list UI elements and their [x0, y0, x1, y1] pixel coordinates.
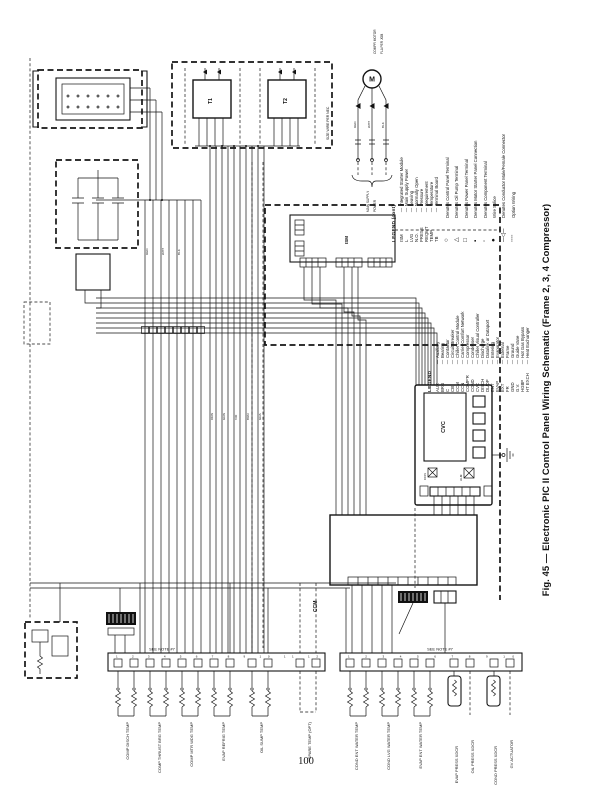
legend-symbol-text: Denotes Power Panel Terminal — [464, 54, 469, 218]
wire-color-label: BLK — [177, 248, 181, 255]
legend-symbol-item: ◦ Denotes Component Terminal — [480, 54, 489, 242]
legend-main: LEGEND AUX — Auxiliary BRG — Bearing C — — [428, 248, 534, 392]
wire-color-label: VIO — [234, 414, 238, 420]
cvc-led-left-label: CCN — [423, 473, 427, 480]
aux-module-box — [24, 254, 110, 344]
sensor-label: COMP DISCH TEMP — [125, 722, 130, 760]
transformer-2-label: T2 — [283, 98, 289, 104]
wire-color-label: RED — [145, 248, 149, 255]
legend-symbol-glyph: ╌╌ — [510, 218, 516, 242]
bottom-left-modules — [25, 612, 136, 678]
legend-symbol-text: Option Wiring — [511, 54, 516, 218]
strip1-header: SEE NOTE #7 — [149, 647, 176, 652]
wire-color-label: GRN — [222, 413, 226, 420]
legend-item: HT EXCH — Heat Exchanger — [525, 248, 530, 392]
sensor-label: EVAP REFRIG TEMP — [221, 722, 226, 761]
wire-color-label: BLK — [381, 121, 385, 128]
wire-color-label: WHT — [161, 248, 165, 255]
manual-page: T1 T2 SIZE WIRE PER NEC M COMPR MOTOR FL… — [0, 0, 612, 792]
cvc-led-right-label: ALM — [459, 474, 463, 481]
sensor-array: COMP DISCH TEMP COMP THRUST BRG TEMP COM… — [116, 671, 515, 785]
legend-symbol-item: ● Wire Splice — [490, 54, 499, 242]
ccm-module: CCM — [313, 515, 477, 653]
legend-symbol-glyph: ─◁─ — [501, 218, 507, 242]
wire-color-label: RED — [353, 121, 357, 128]
wire-color-label: GRA — [258, 412, 262, 420]
cvc-module: CVC CCN ALM — [415, 385, 513, 515]
legend-meaning: Terminal Board — [434, 54, 439, 206]
legend-dash: — — [434, 206, 439, 214]
legend-symbol-text: Denotes Control Panel Terminal — [445, 54, 450, 218]
supply-note-1: MAIN SUPPLY — [366, 190, 370, 212]
legend-symbol-item: △ Denotes Oil Pump Terminal — [452, 54, 461, 242]
legend-list: AUX — Auxiliary BRG — Bearing C — Contac… — [435, 248, 531, 392]
legend-dash: — — [525, 358, 530, 366]
legend-symbol-text: Denotes Conductor Male/Female Connector — [501, 54, 506, 218]
legend-cont: LEGEND (cont) ISM — Integrated Starter M… — [392, 54, 524, 242]
legend-meaning: Heat Exchanger — [525, 248, 530, 358]
legend-symbol-glyph: △ — [454, 218, 460, 242]
capacitor-box — [56, 160, 138, 248]
sensor-label: SPARE TEMP (OPT) — [307, 721, 312, 759]
transformer-box: T1 T2 SIZE WIRE PER NEC — [172, 62, 332, 148]
motor-label: M — [369, 77, 375, 84]
ccm-label: CCM — [313, 601, 319, 612]
legend-symbol-glyph: □ — [463, 218, 469, 242]
legend-symbol-item: □ Denotes Power Panel Terminal — [462, 54, 471, 242]
figure-caption-block: Fig. 45 — Electronic PIC II Control Pane… — [532, 150, 558, 650]
terminal-strip-2: SEE NOTE #7 1 2 3 4 5 6 7 8 9 10 — [340, 647, 522, 672]
figure-caption: Fig. 45 — Electronic PIC II Control Pane… — [540, 204, 551, 596]
strip2-numbers: 1 2 3 4 5 6 7 8 9 10 — [348, 655, 514, 659]
legend-symbol-glyph: ○ — [444, 218, 450, 242]
wire-color-label: BRN — [246, 413, 250, 420]
terminal-strip-1: SEE NOTE #7 1 2 3 4 5 6 7 8 9 10 11 12 — [108, 647, 325, 672]
legend-symbol-text: Denotes Component Terminal — [483, 54, 488, 218]
legend-symbol-item: ─◁─ Denotes Conductor Male/Female Connec… — [499, 54, 508, 242]
legend-abbr: HT EXCH — [525, 366, 530, 392]
legend-symbol-glyph: ▪ — [473, 218, 479, 242]
legend-symbol-text: Wire Splice — [492, 54, 497, 218]
legend-symbol-glyph: ● — [491, 218, 497, 242]
wire-color-labels: RED WHT BLK ORN GRN VIO BRN GRA — [145, 248, 262, 420]
legend-item: TB — Terminal Board — [434, 54, 439, 242]
ism-label: ISM — [344, 236, 349, 244]
legend-symbol-item: ▪ Denotes Motor Starter Panel Connection — [471, 54, 480, 242]
legend-abbr: TB — [434, 214, 439, 242]
legend-symbol-text: Denotes Motor Starter Panel Connection — [473, 54, 478, 218]
legend-symbol-glyph: ◦ — [482, 218, 488, 242]
strip2-header: SEE NOTE #7 — [427, 647, 454, 652]
sensor-label: OIL SUMP TEMP — [259, 722, 264, 753]
legend-symbol-item: ╌╌ Option Wiring — [509, 54, 518, 242]
legend-symbol-text: Denotes Oil Pump Terminal — [454, 54, 459, 218]
motor-note-2: FLA PER JOB — [380, 34, 384, 54]
wire-color-label: WHT — [367, 121, 371, 128]
compressor-motor: M COMPR MOTOR FLA PER JOB RED WHT BLK MA… — [352, 29, 392, 212]
nec-note: SIZE WIRE PER NEC — [326, 106, 330, 140]
page-number: 100 — [0, 756, 612, 767]
legend-symbol-list: ○ Denotes Control Panel Terminal △ Denot… — [443, 54, 518, 242]
legend-cont-abbr-list: ISM — Integrated Starter Module L — Main… — [399, 54, 439, 242]
wire-color-label: ORN — [210, 413, 214, 420]
strip1-numbers: 1 2 3 4 5 6 7 8 9 10 11 12 — [116, 655, 318, 659]
cvc-label: CVC — [441, 421, 447, 433]
legend-symbol-item: ○ Denotes Control Panel Terminal — [443, 54, 452, 242]
transformer-1-label: T1 — [208, 98, 214, 104]
motor-note-1: COMPR MOTOR — [373, 29, 377, 54]
